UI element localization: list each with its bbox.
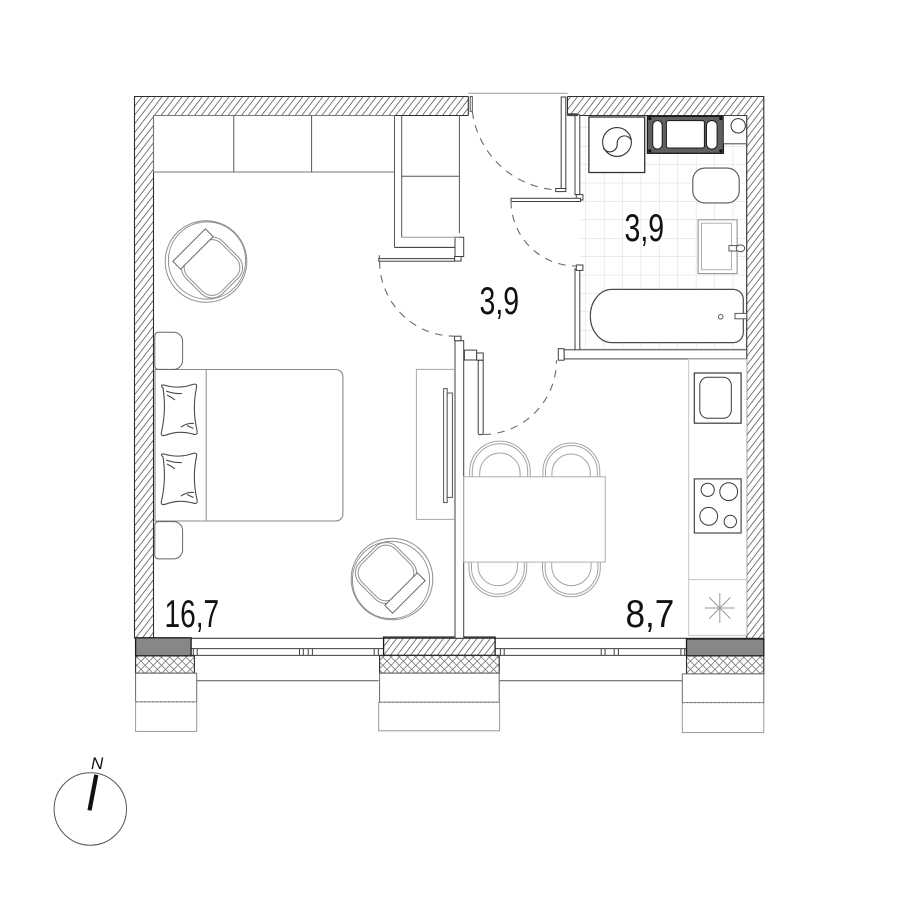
svg-text:N: N <box>91 754 104 773</box>
svg-text:3,9: 3,9 <box>625 207 665 250</box>
svg-text:8,7: 8,7 <box>626 591 675 635</box>
svg-text:16,7: 16,7 <box>165 593 220 637</box>
svg-text:3,9: 3,9 <box>480 280 520 323</box>
